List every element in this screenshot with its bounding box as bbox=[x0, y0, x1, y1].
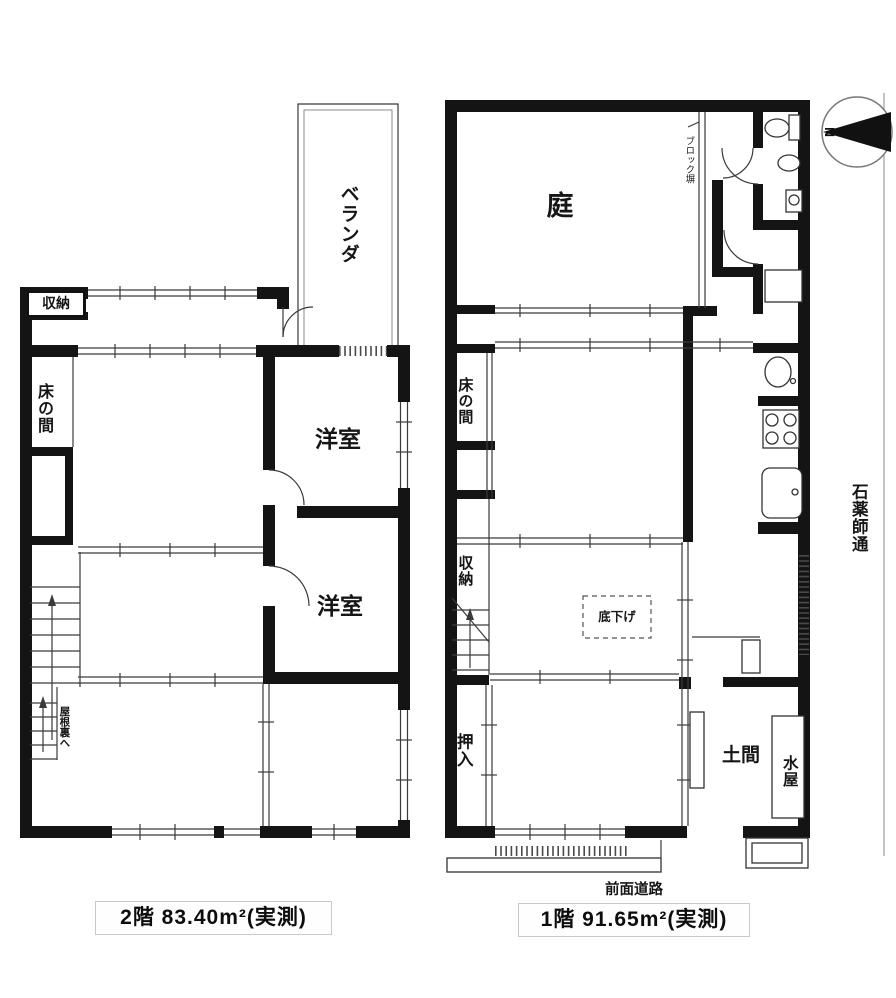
room-label-mizuya: 水屋 bbox=[777, 744, 801, 798]
label-front-road: 前面道路 bbox=[578, 881, 690, 899]
north-compass-icon: N bbox=[822, 97, 892, 167]
room-label-tokonoma-2f: 床の間 bbox=[30, 362, 56, 454]
room-label-oshiire: 押入 bbox=[450, 718, 476, 782]
floor1-fixtures bbox=[762, 115, 802, 518]
floor2-windows bbox=[73, 286, 412, 840]
compass-north-label: N bbox=[822, 127, 838, 137]
label-to-attic: 屋根裏へ bbox=[55, 694, 72, 760]
room-label-storage-2f: 収納 bbox=[27, 291, 85, 317]
room-label-veranda: ベランダ bbox=[332, 168, 364, 280]
floorplan-drawing: N bbox=[0, 0, 896, 998]
floor1-walls bbox=[445, 100, 810, 838]
street-name-label: 石薬師通 bbox=[843, 466, 873, 570]
floor1-caption: 1階 91.65m²(実測) bbox=[518, 903, 750, 937]
floor2-caption: 2階 83.40m²(実測) bbox=[95, 901, 332, 935]
label-lowered-floor: 底下げ bbox=[585, 604, 649, 630]
room-label-storage-1f: 収納 bbox=[452, 542, 476, 600]
room-label-western-room-upper: 洋室 bbox=[296, 426, 380, 454]
floor2-walls bbox=[20, 287, 410, 838]
floor1-doors bbox=[722, 148, 758, 264]
floorplan-page: N ベランダ 収納 床の間 洋室 洋室 屋根裏へ 2階 83.40m²(実測) … bbox=[0, 0, 896, 998]
room-label-garden: 庭 bbox=[530, 188, 590, 224]
room-label-western-room-lower: 洋室 bbox=[298, 593, 382, 621]
label-block-wall: ブロック塀 bbox=[680, 128, 696, 192]
floor1-stairs bbox=[452, 598, 489, 670]
room-label-tokonoma-1f: 床の間 bbox=[452, 360, 476, 442]
room-label-doma: 土間 bbox=[714, 744, 768, 768]
